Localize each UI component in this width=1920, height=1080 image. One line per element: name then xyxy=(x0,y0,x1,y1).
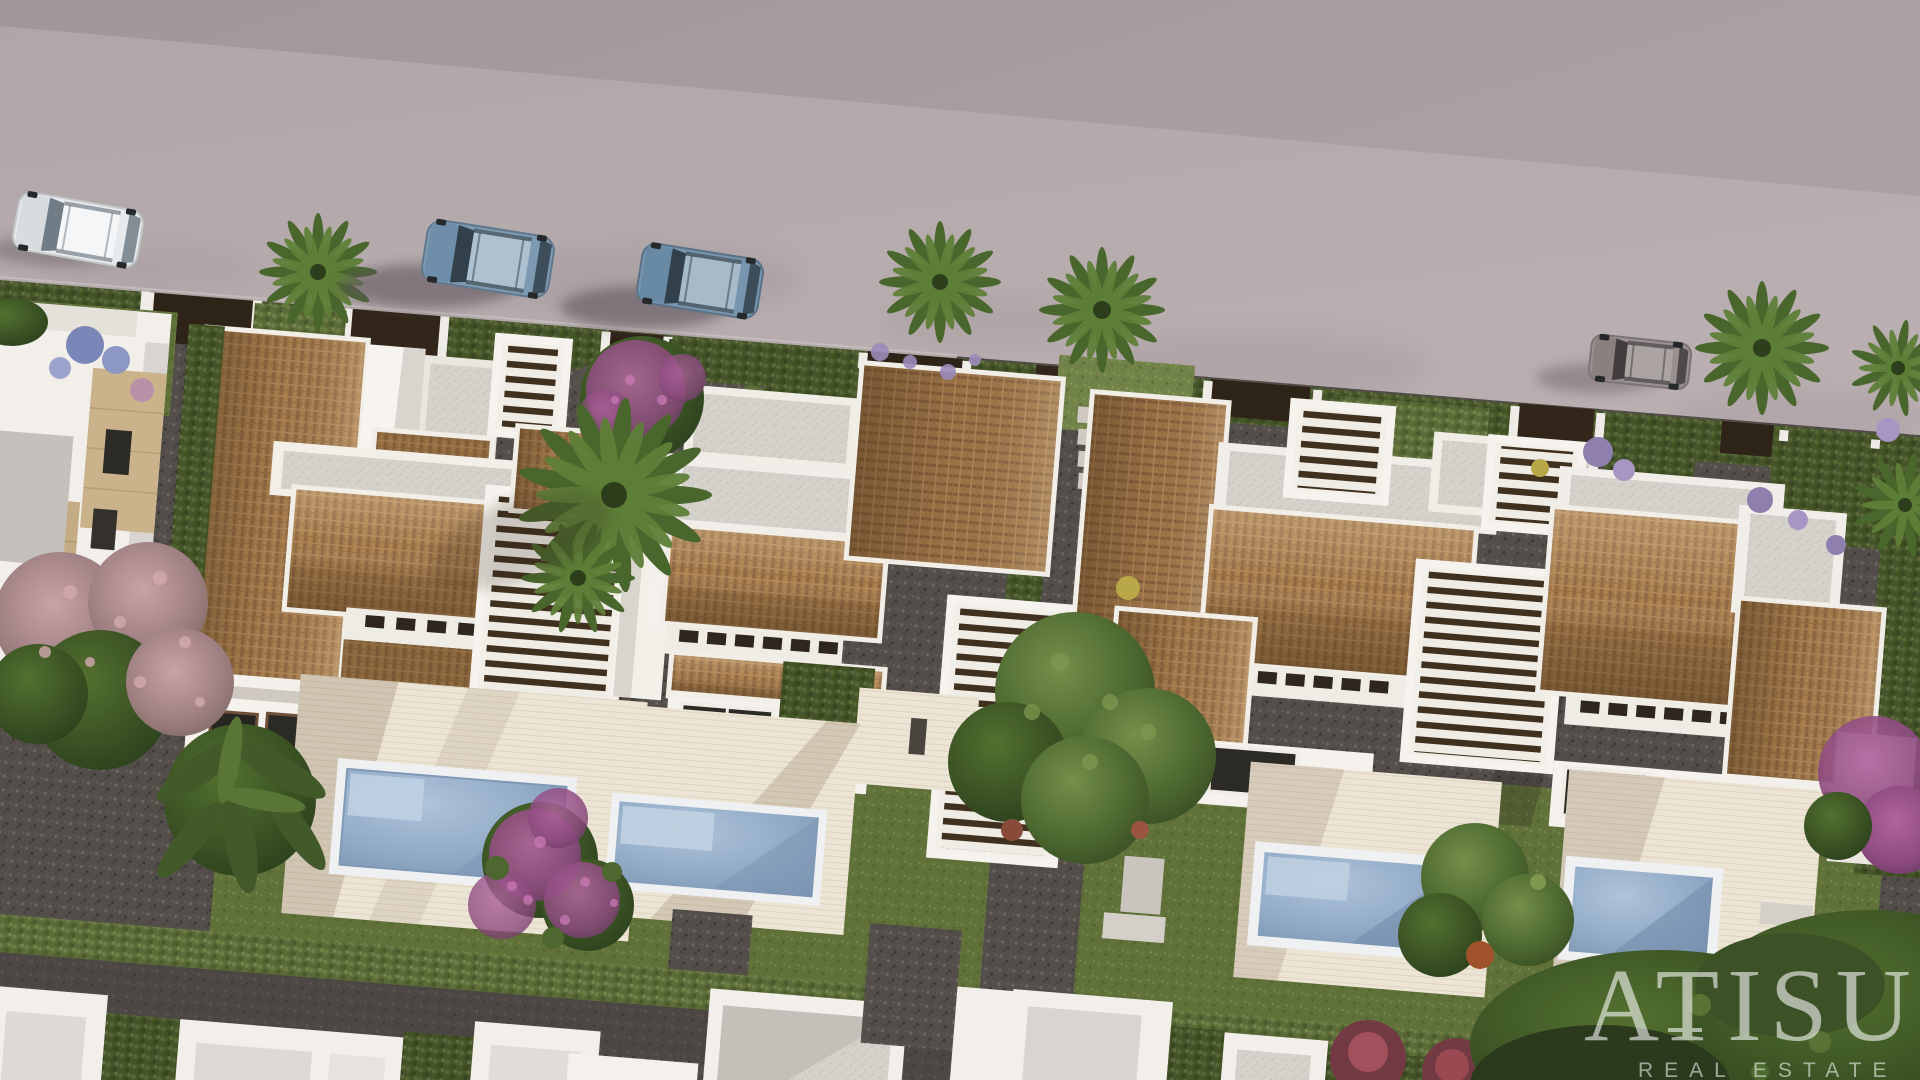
svg-text:REAL ESTATE: REAL ESTATE xyxy=(1638,1059,1897,1080)
svg-text:ATISU: ATISU xyxy=(1584,948,1919,1063)
